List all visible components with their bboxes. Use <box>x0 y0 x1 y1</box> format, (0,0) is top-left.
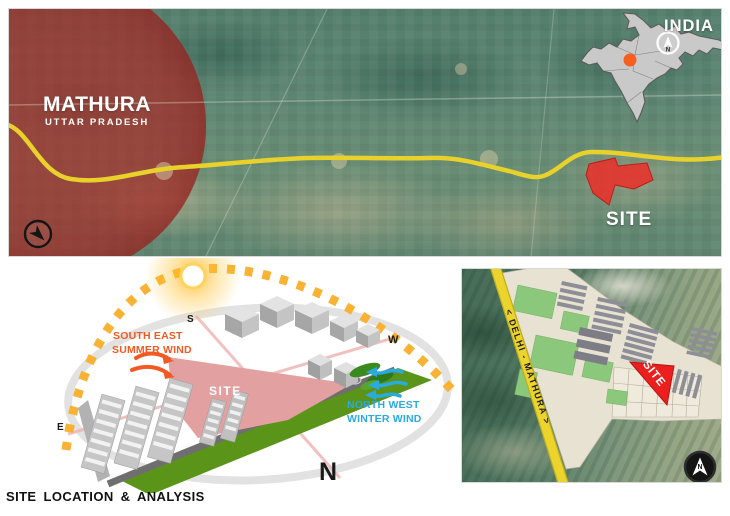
north-arrow-icon <box>25 221 51 247</box>
village-patch <box>455 63 467 75</box>
site-boundary-polygon <box>586 158 653 205</box>
compass-icon: N <box>685 452 715 482</box>
direction-west-label: W <box>388 334 398 346</box>
country-label: INDIA <box>664 17 714 36</box>
summer-wind-label-line2: SUMMER WIND <box>112 344 192 356</box>
village-patch <box>331 153 347 169</box>
minor-road-line <box>205 9 327 257</box>
compass-north-letter: N <box>666 47 671 54</box>
summer-wind-label-line1: SOUTH EAST <box>113 330 183 342</box>
winter-wind-label-line1: NORTH WEST <box>347 399 420 411</box>
city-label: MATHURA <box>43 93 151 117</box>
minor-road-line <box>531 9 554 257</box>
direction-south-label: S <box>187 314 194 325</box>
direction-north-label: N <box>319 458 337 487</box>
page-title: SITE LOCATION & ANALYSIS <box>6 489 205 504</box>
state-label: UTTAR PRADESH <box>45 117 149 128</box>
site-analysis-diagram <box>50 258 455 493</box>
site-analysis-board: N MATHURA UTTAR PRADESH SITE INDIA <box>0 0 730 516</box>
sun-icon <box>181 264 205 288</box>
winter-wind-label-line2: WINTER WIND <box>347 413 422 425</box>
compass-north-letter: N <box>697 464 702 471</box>
regional-satellite-map: N MATHURA UTTAR PRADESH SITE INDIA <box>8 8 722 257</box>
site-label-diagram: SITE <box>209 384 242 398</box>
site-label: SITE <box>606 209 652 231</box>
location-dot <box>624 54 637 67</box>
direction-east-label: E <box>57 422 64 433</box>
